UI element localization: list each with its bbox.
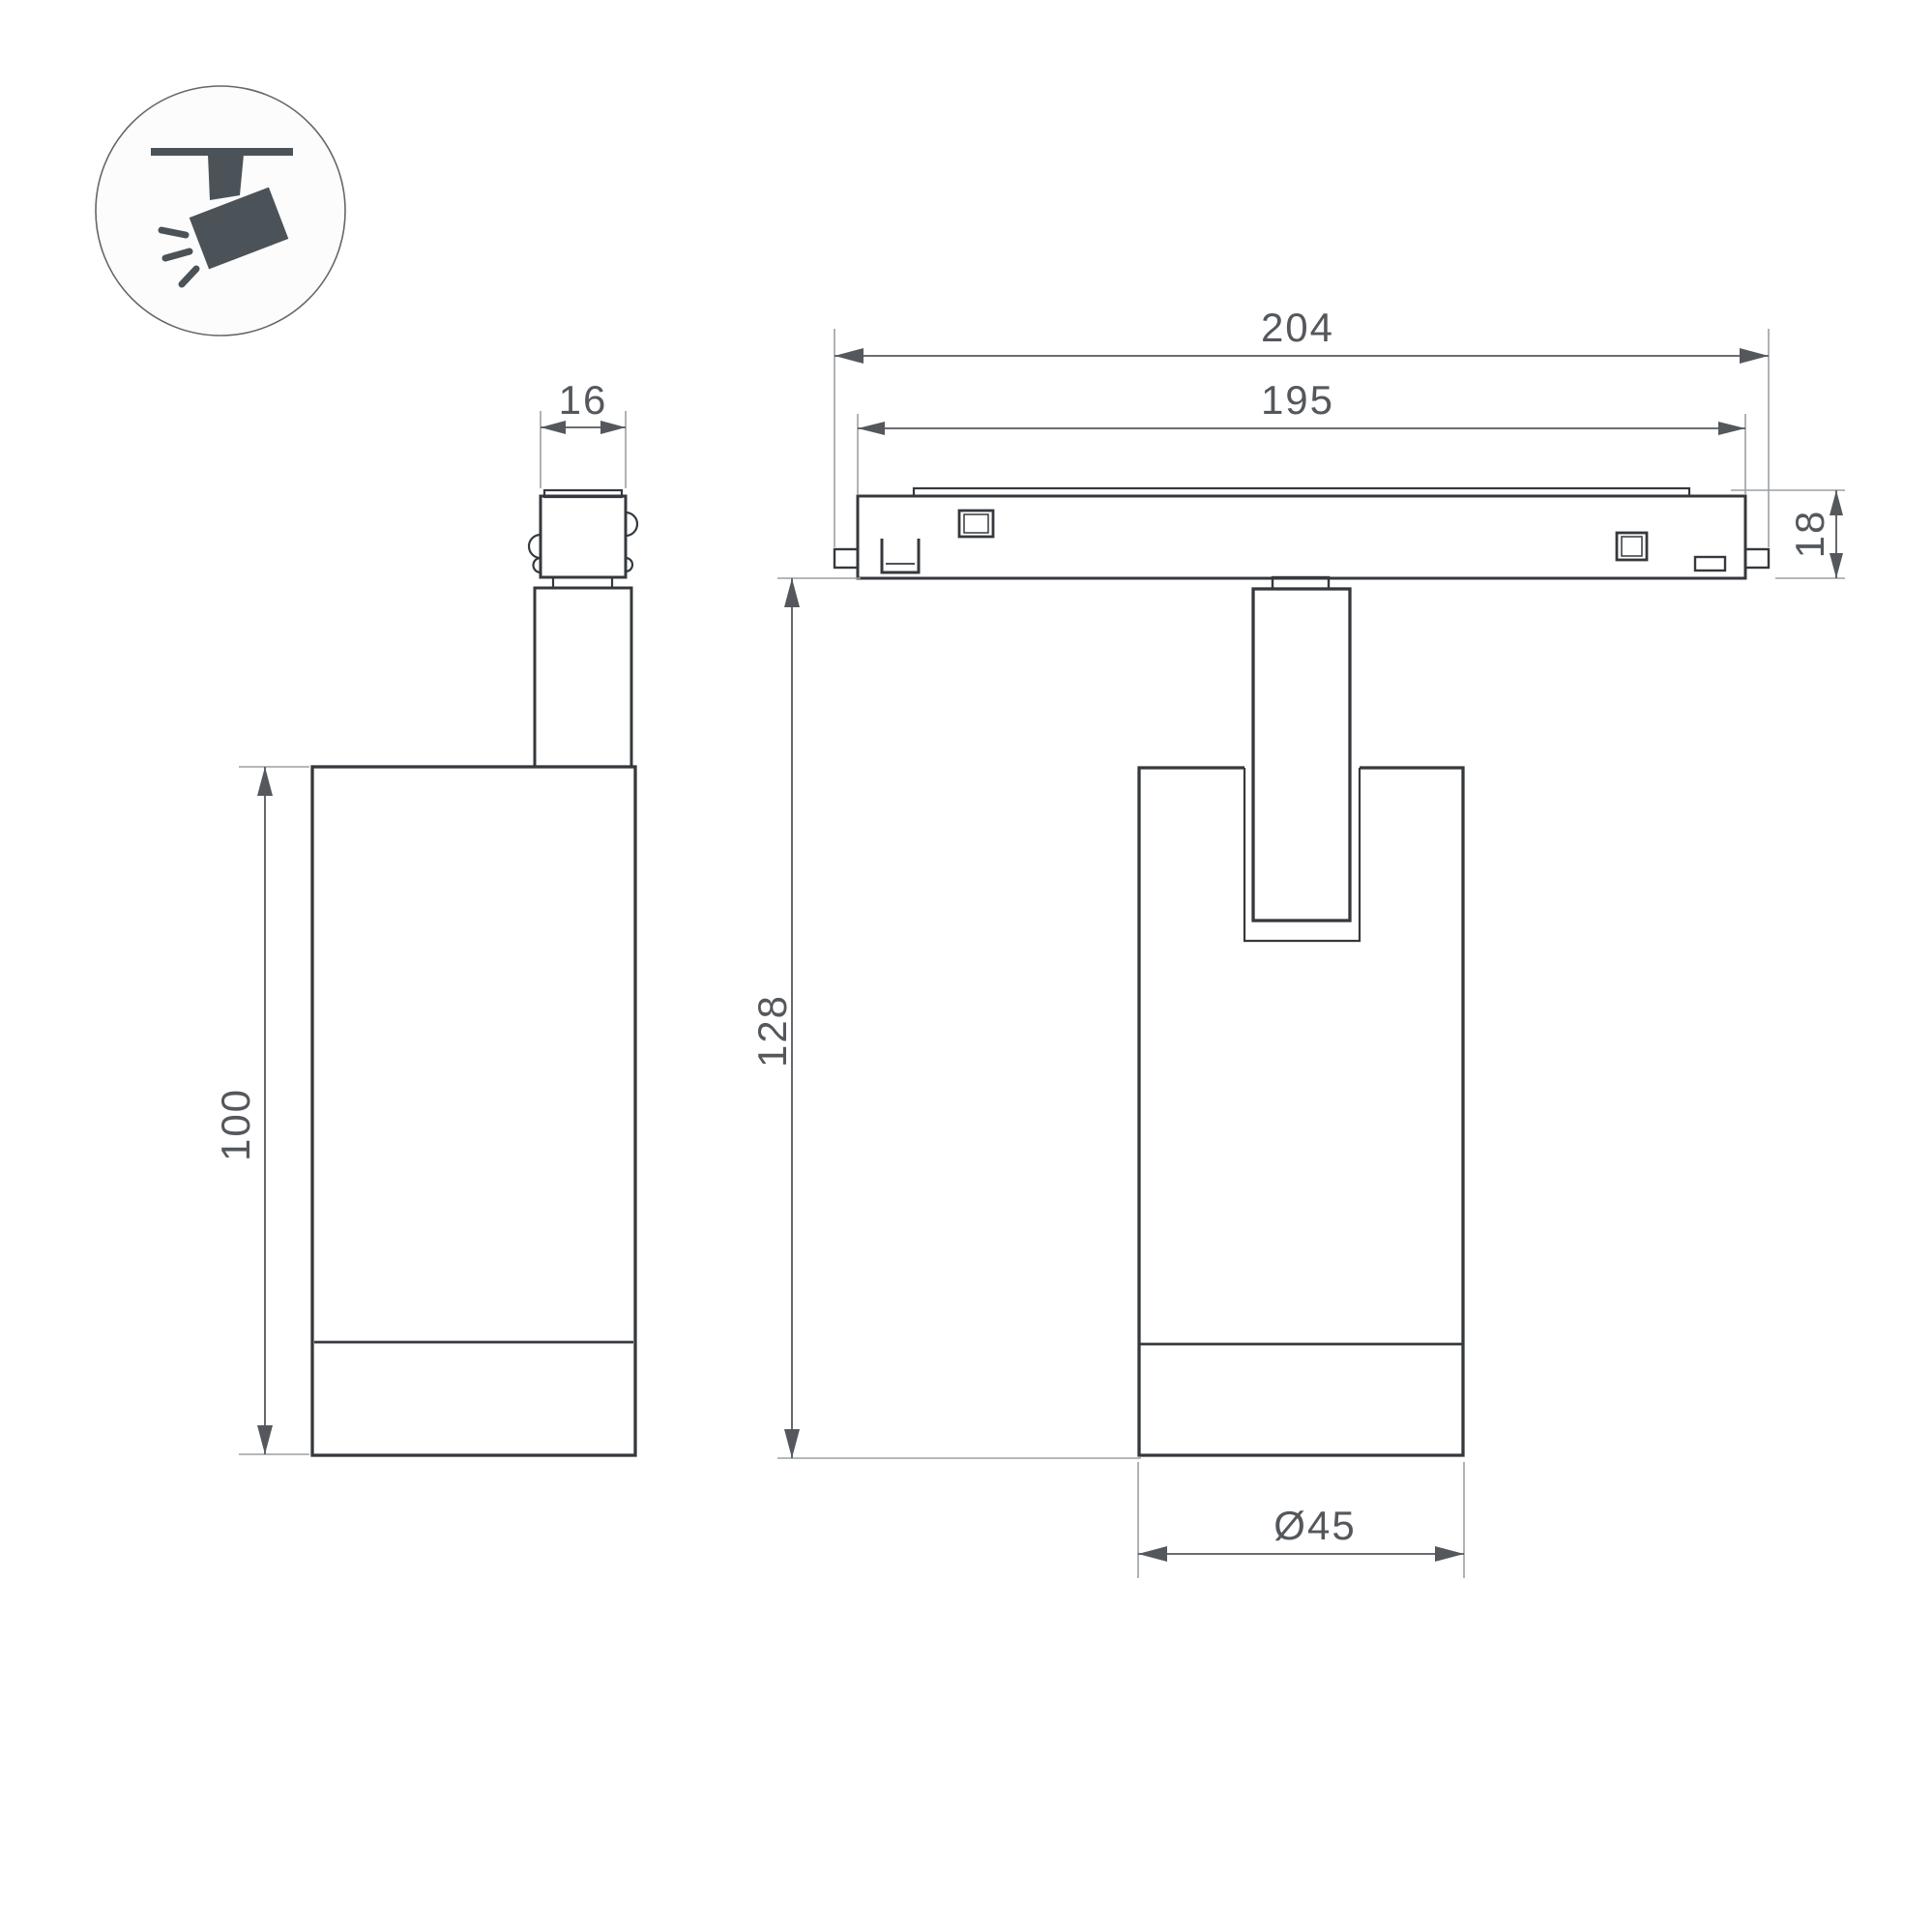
drawing-page: 204 195 16 18 128 <box>0 0 1932 1932</box>
dimension-label: 18 <box>1787 510 1832 559</box>
arrowhead-left <box>858 422 885 435</box>
dimension-label: 16 <box>559 377 608 423</box>
track-clip-u <box>882 539 919 572</box>
lamp-body-front <box>1139 768 1463 1455</box>
arrowhead-bottom <box>784 1429 800 1458</box>
dimension-track-length-inner: 195 <box>858 377 1745 494</box>
arrowhead-top <box>257 767 273 796</box>
stem-neck <box>553 577 612 588</box>
ceiling-track-bar-icon <box>151 148 293 156</box>
front-view <box>834 488 1769 1455</box>
dimension-body-diameter: Ø45 <box>1138 1462 1464 1578</box>
arrowhead-left <box>1138 1546 1167 1562</box>
dimension-label: 128 <box>749 994 795 1068</box>
side-view <box>312 490 637 1455</box>
mount-stem-icon <box>208 155 244 200</box>
dimension-label: Ø45 <box>1273 1503 1356 1548</box>
dimension-overall-height: 128 <box>749 578 1141 1458</box>
track-end-tab-right <box>1745 549 1769 568</box>
track-contact-right-inner <box>1622 537 1642 556</box>
spotlight-icon-badge <box>96 86 345 336</box>
arrowhead-left <box>834 348 864 364</box>
track-adapter-box <box>541 496 626 577</box>
track-slot-right <box>1695 557 1725 571</box>
dimension-label: 195 <box>1261 377 1334 423</box>
arrowhead-left <box>541 421 566 434</box>
adapter-clip-left <box>529 535 541 558</box>
arrowhead-right <box>1435 1546 1464 1562</box>
adapter-clip-right <box>626 512 637 536</box>
dimension-label: 204 <box>1261 305 1334 350</box>
lamp-body <box>312 767 635 1455</box>
stem <box>535 588 631 767</box>
stem-front <box>1253 589 1350 921</box>
arrowhead-top <box>784 578 800 607</box>
arrowhead-right <box>600 421 626 434</box>
track-contact-left-inner <box>964 514 988 533</box>
arrowhead-right <box>1718 422 1745 435</box>
technical-drawing-canvas: 204 195 16 18 128 <box>0 0 1932 1932</box>
dimension-track-height: 18 <box>1731 490 1845 578</box>
arrowhead-bottom <box>257 1425 273 1454</box>
dimension-body-height: 100 <box>213 767 309 1454</box>
arrowhead-right <box>1740 348 1769 364</box>
track-end-tab-left <box>834 549 858 568</box>
stem-slot <box>1244 768 1360 941</box>
dimension-adapter-width: 16 <box>541 377 626 488</box>
dimension-label: 100 <box>213 1088 258 1161</box>
